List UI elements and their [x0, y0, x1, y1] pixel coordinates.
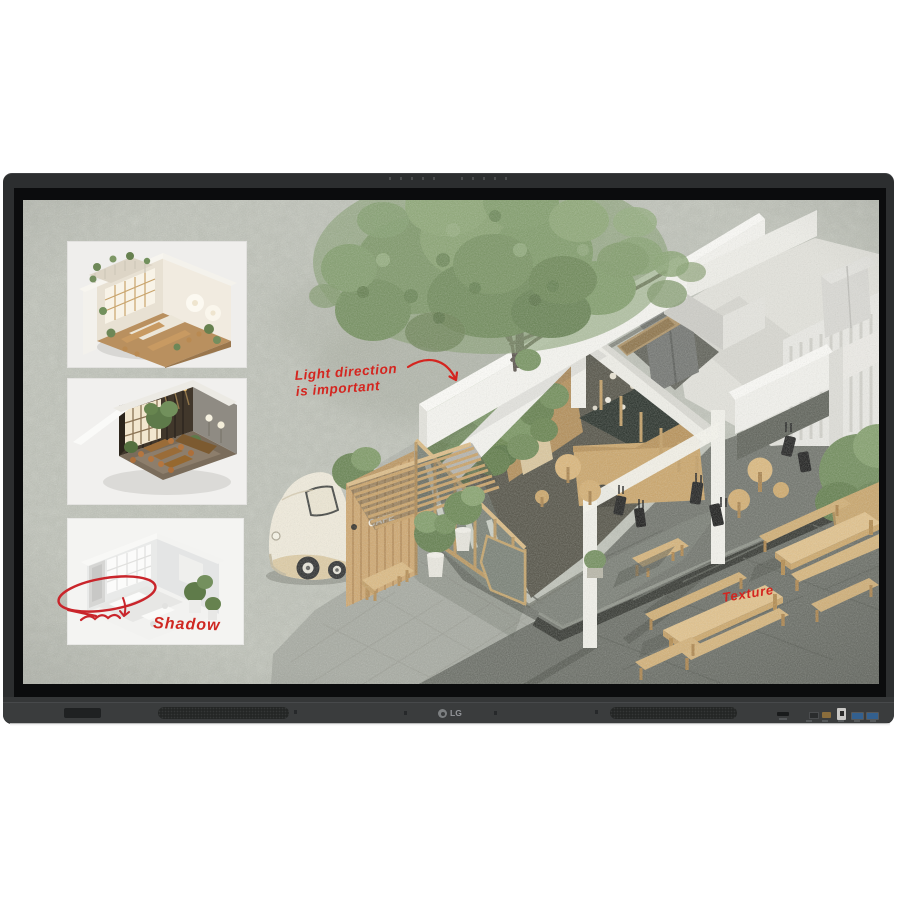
svg-text:Shadow: Shadow	[153, 615, 221, 634]
